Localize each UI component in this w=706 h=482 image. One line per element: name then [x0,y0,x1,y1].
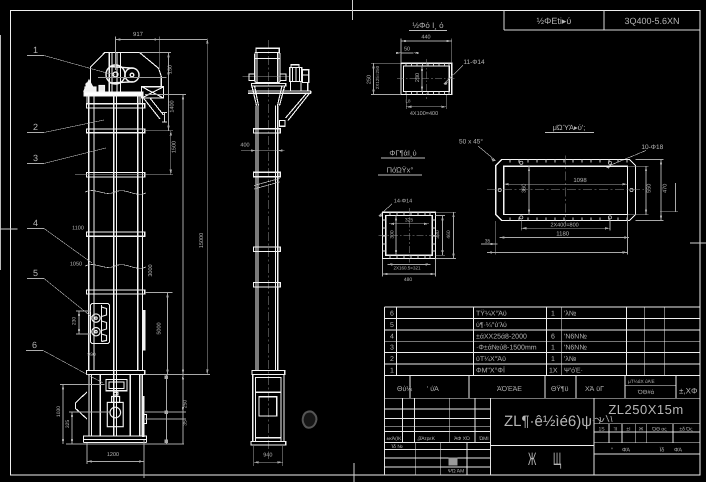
svg-text:280: 280 [415,73,421,82]
svg-text:ΌΘ ας: ΌΘ ας [651,427,667,433]
svg-text:4: 4 [33,218,38,228]
svg-text:ΠόΏΫx°: ΠόΏΫx° [387,166,414,175]
svg-text:ΦΆ: ΦΆ [622,448,630,454]
svg-text:°: ° [611,448,613,454]
svg-text:4X100=400: 4X100=400 [410,111,438,117]
svg-text:2: 2 [33,122,38,132]
svg-text:1500: 1500 [172,141,178,153]
svg-text:4: 4 [390,333,394,340]
svg-text:2X125=250: 2X125=250 [375,65,380,89]
svg-text:' ύΆ: ' ύΆ [427,385,439,393]
svg-text:'Ν6Ν№: 'Ν6Ν№ [564,345,587,352]
svg-text:3: 3 [33,153,38,163]
svg-text:6: 6 [551,333,555,340]
svg-text:470: 470 [663,184,669,193]
svg-text:1098: 1098 [573,177,587,184]
svg-text:ϋΤ¼Χ°Άϋ: ϋΤ¼Χ°Άϋ [476,356,506,363]
svg-text:15000: 15000 [199,233,205,248]
svg-text:½Φό Ι¸ ό: ½Φό Ι¸ ό [412,21,444,30]
svg-text:±δ Ός: ±δ Ός [679,427,693,433]
svg-text:ΨΏ ΆΜ: ΨΏ ΆΜ [448,469,465,475]
svg-text:'Ν6Ν№: 'Ν6Ν№ [564,333,587,340]
svg-text:1: 1 [551,356,555,363]
svg-text:ΘΫ¶ϋ: ΘΫ¶ϋ [551,385,569,393]
svg-text:'λ№: 'λ№ [564,355,577,363]
svg-text:250: 250 [367,75,373,84]
svg-text:±άΧΧ25ά8-2000: ±άΧΧ25ά8-2000 [476,332,527,340]
svg-text:990: 990 [87,352,96,358]
svg-text:3000: 3000 [148,264,154,276]
svg-text:917: 917 [133,31,144,38]
svg-text:3Q400-5.6ΧΝ: 3Q400-5.6ΧΝ [624,16,679,26]
svg-text:480: 480 [404,277,413,283]
svg-text:2X400=800: 2X400=800 [550,222,578,228]
svg-text:ΌΘ#ά: ΌΘ#ά [637,389,655,396]
svg-text:Ψ'όΈ·: Ψ'όΈ· [564,367,583,375]
svg-text:10-Φ18: 10-Φ18 [641,144,663,151]
svg-text:5: 5 [33,268,38,278]
svg-text:μΏΎΆ▸ύ';: μΏΎΆ▸ύ'; [553,123,586,132]
svg-text:ΦΓ¶άΙ¸ύ: ΦΓ¶άΙ¸ύ [389,149,416,158]
svg-text:230: 230 [72,317,78,326]
svg-text:Ж: Ж [639,427,644,433]
svg-text:35: 35 [183,420,189,426]
svg-text:1: 1 [33,45,38,55]
svg-text:1X: 1X [549,368,558,375]
svg-text:3: 3 [390,345,394,352]
svg-text:±,XΦ: ±,XΦ [679,387,697,396]
svg-text:μΤ¼άX ύΆΈ: μΤ¼άX ύΆΈ [628,379,655,385]
svg-text:550: 550 [647,184,653,193]
svg-text:400: 400 [240,143,249,149]
svg-text:Ϊδ: Ϊδ [660,447,665,454]
svg-text:5: 5 [390,322,394,329]
svg-text:Ж: Ж [528,449,537,469]
svg-text:ΧΆ ϋΓ: ΧΆ ϋΓ [585,386,604,393]
svg-text:250: 250 [183,400,189,409]
svg-text:2X160.5=321: 2X160.5=321 [394,266,421,271]
svg-text:ύ¶·¼°ύ'λύ: ύ¶·¼°ύ'λύ [476,321,507,329]
svg-text:ΊΙ: ΊΙ [613,427,617,433]
svg-text:2: 2 [390,356,394,363]
svg-text:35: 35 [485,239,491,245]
svg-text:460: 460 [446,230,452,239]
svg-text:'λ№: 'λ№ [564,310,577,318]
svg-text:·Φ±ά№ύ8-1500mm: ·Φ±ά№ύ8-1500mm [476,344,537,352]
svg-text:50: 50 [404,47,410,53]
svg-text:6: 6 [390,311,394,318]
svg-text:325: 325 [405,218,414,224]
svg-text:440: 440 [421,35,430,41]
svg-text:50 x 45°: 50 x 45° [459,139,483,146]
svg-text:1030: 1030 [56,406,62,417]
svg-text:ΆΦ ΧΌ: ΆΦ ΧΌ [454,436,470,442]
svg-text:1: 1 [551,311,555,318]
svg-text:1: 1 [551,345,555,352]
svg-text:Щ: Щ [553,449,562,469]
svg-text:Ίδ №: Ίδ № [390,444,403,450]
svg-text:ΦΜ"Χ°ΦΪ: ΦΜ"Χ°ΦΪ [476,367,505,375]
svg-text:ΆΌΈΆΕ: ΆΌΈΆΕ [497,386,522,393]
svg-text:150: 150 [168,65,174,74]
svg-text:1200: 1200 [107,452,119,458]
svg-text:325: 325 [65,420,71,429]
svg-text:940: 940 [263,453,272,459]
svg-text:360: 360 [522,184,528,193]
svg-text:1Ѕ: 1Ѕ [598,427,605,433]
svg-text:5000: 5000 [157,322,163,334]
svg-text:ΦΆ: ΦΆ [674,448,682,454]
svg-text:1400: 1400 [170,100,176,112]
svg-text:1050: 1050 [70,262,82,268]
svg-text:,βΆτρεΚ: ,βΆτρεΚ [417,436,436,442]
svg-text:6: 6 [32,340,37,350]
svg-text:1: 1 [390,368,394,375]
svg-text:ΏΜΙ: ΏΜΙ [478,436,488,442]
svg-text:ZL¶·ê½ìé6)ψ: ZL¶·ê½ìé6)ψ [504,413,592,430]
svg-text:ΤΫ¼Χ°Άϋ: ΤΫ¼Χ°Άϋ [476,310,507,318]
svg-text:Θύ¼: Θύ¼ [397,385,412,393]
svg-text:1180: 1180 [556,231,570,238]
svg-text:ZL250X15m: ZL250X15m [608,402,683,417]
svg-text:L8: L8 [405,99,411,104]
svg-text:1100: 1100 [72,226,84,232]
svg-text:300: 300 [389,230,395,239]
svg-text:±κΆ(ΙΚ: ±κΆ(ΙΚ [387,436,403,442]
svg-text:½ΦΕti▸ύ: ½ΦΕti▸ύ [537,16,572,26]
svg-text:±Ι: ±Ι [626,427,630,433]
svg-text:380: 380 [435,230,441,239]
svg-text:11-Φ14: 11-Φ14 [463,59,485,66]
svg-text:14-Φ14: 14-Φ14 [394,199,412,205]
